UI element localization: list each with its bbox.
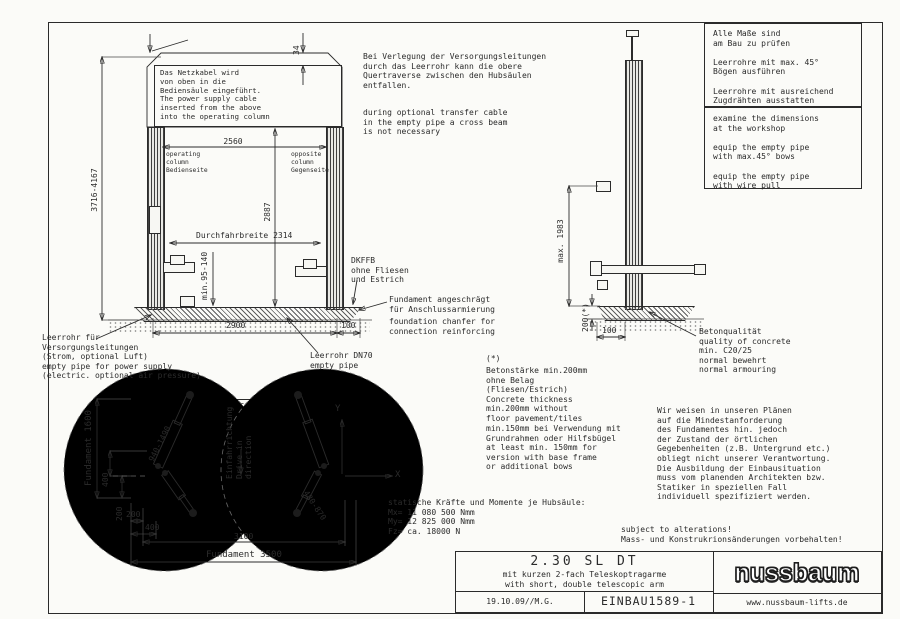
front-view-lines: [96, 33, 387, 353]
dim-total-height: 3716-4167: [90, 145, 100, 235]
dim-foundation-width: 2900: [226, 321, 245, 331]
note-pruefen-en: examine the dimensions at the workshop e…: [713, 114, 857, 191]
note-pruefen-de: Alle Maße sind am Bau zu prüfen Leerrohr…: [713, 29, 857, 106]
drawing-number: EINBAU1589-1: [584, 595, 713, 609]
dim-3100: 3100: [234, 532, 253, 542]
dim-max-height: max. 1983: [556, 212, 566, 270]
logo-cell-divider: [713, 593, 881, 594]
label-drive-direction: Einfahrrichtung Drive in direction: [225, 395, 254, 479]
dim-fundament-1600: Fundament 1600: [84, 401, 95, 495]
subtitle-english: with short, double telescopic arm: [456, 580, 713, 590]
model-designation: 2.30 SL DT: [456, 554, 713, 570]
installation-drawing-sheet: Das Netzkabel wird von oben in die Bedie…: [0, 0, 900, 619]
dim-foundation-edge: 100: [341, 321, 355, 331]
dim-400-horizontal: 400: [145, 523, 159, 533]
dim-fundament-3500: Fundament 3500: [206, 550, 282, 561]
note-box-german: Alle Maße sind am Bau zu prüfen Leerrohr…: [704, 23, 862, 108]
dim-foundation-depth: 200(*): [581, 294, 591, 332]
dim-side-edge: 100: [602, 326, 616, 336]
note-static-forces: statische Kräfte und Momente je Hubsäule…: [388, 498, 618, 536]
note-chamfer-en: foundation chanfer for connection reinfo…: [389, 317, 495, 336]
nussbaum-logo: nussbaum: [713, 559, 881, 588]
label-operating-column: operating column Bedienseite: [166, 151, 212, 175]
axis-x-label: X: [395, 470, 400, 481]
dim-beam-thickness: 34: [292, 37, 302, 55]
label-opposite-column: opposite column Gegenseite: [291, 151, 333, 175]
website-url: www.nussbaum-lifts.de: [713, 598, 881, 608]
note-dkffb: DKFFB ohne Fliesen und Estrich: [351, 256, 409, 285]
axis-y-label: Y: [335, 404, 340, 415]
subtitle-german: mit kurzen 2-fach Teleskoptragarme: [456, 570, 713, 580]
note-concrete-quality: Betonqualität quality of concrete min. C…: [699, 327, 791, 375]
note-concrete-thickness-2: min.150mm bei Verwendung mit Grundrahmen…: [486, 424, 676, 472]
note-foundation-requirements: Wir weisen in unseren Plänen auf die Min…: [657, 406, 879, 502]
note-empty-pipe-left: Leerrohr für Versorgungsleitungen (Strom…: [42, 333, 242, 381]
dim-400-vertical: 400: [101, 463, 111, 487]
note-verlegung-en: during optional transfer cable in the em…: [363, 108, 573, 137]
note-concrete-thickness: Betonstärke min.200mm ohne Belag (Fliese…: [486, 366, 666, 424]
dim-200-horizontal: 200: [126, 510, 140, 520]
note-alterations: subject to alterations! Mass- und Konstr…: [621, 525, 881, 544]
note-star: (*): [486, 354, 500, 364]
date-and-author: 19.10.09//M.G.: [456, 597, 584, 607]
dim-200-vertical: 200: [115, 499, 125, 521]
dim-min-pad-height: min.95-140: [200, 246, 210, 300]
note-box-english: examine the dimensions at the workshop e…: [704, 106, 862, 189]
note-verlegung-de: Bei Verlegung der Versorgungsleitungen d…: [363, 52, 588, 90]
dim-clear-height: 2887: [263, 191, 273, 233]
dim-column-span: 2560: [213, 137, 253, 147]
dim-drive-through-width: Durchfahrbreite 2314: [196, 231, 292, 241]
note-chamfer-de: Fundament angeschrägt für Anschlussarmie…: [389, 295, 495, 314]
note-empty-pipe-dn70: Leerrohr DN70 empty pipe: [310, 351, 373, 370]
title-block: 2.30 SL DT mit kurzen 2-fach Teleskoptra…: [455, 551, 882, 613]
